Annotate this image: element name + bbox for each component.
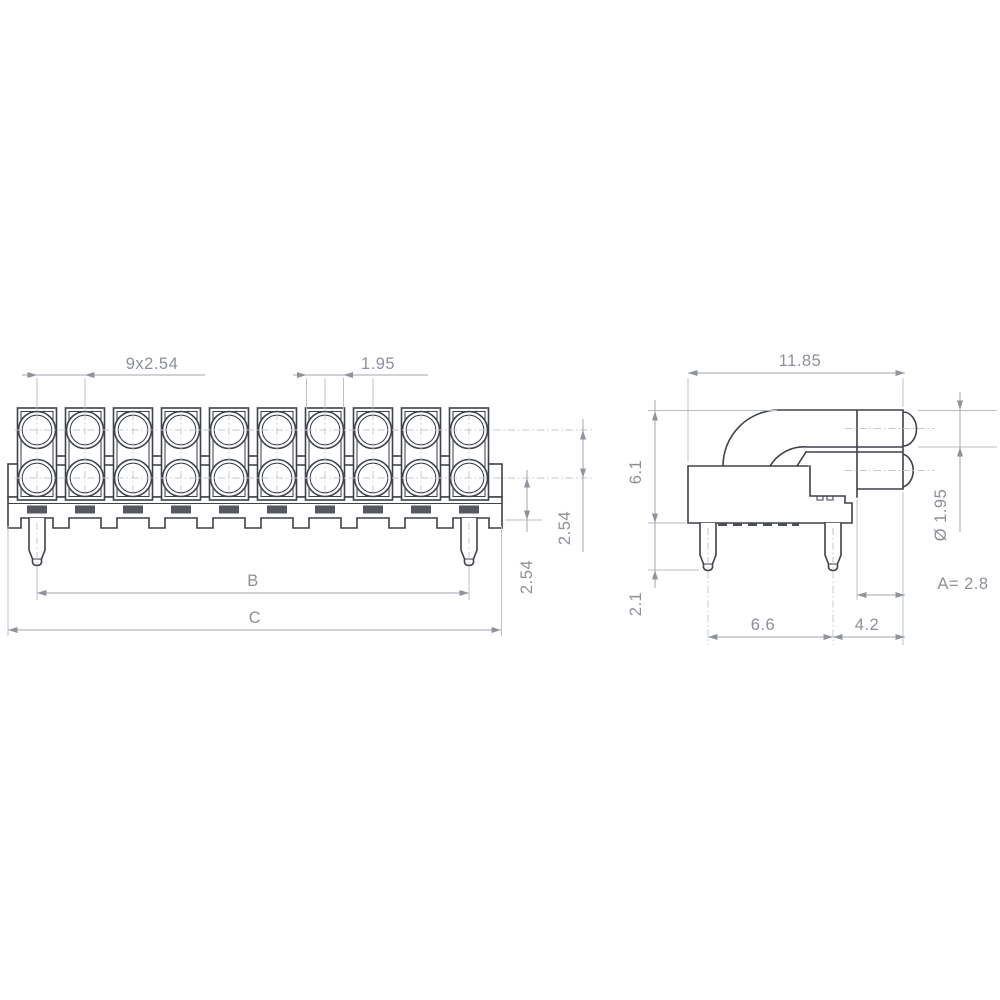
led-column — [66, 408, 105, 514]
dim-label-pin-spacing: 6.6 — [751, 616, 775, 634]
led-column — [162, 408, 201, 514]
led-column — [114, 408, 153, 514]
dim-label-pitch: 9x2.54 — [126, 355, 179, 373]
dim-label-lens-offset: 4.2 — [855, 616, 879, 634]
dim-label-pin-span-b: B — [247, 572, 259, 590]
led-column — [210, 408, 249, 514]
technical-drawing-canvas: 9x2.54 1.95 2.54 2.54 B C 11.85 6.1 2.1 … — [0, 0, 1000, 1000]
mounting-pin — [29, 518, 45, 566]
side-view — [688, 410, 917, 571]
led-column — [258, 408, 297, 514]
front-view — [8, 408, 502, 566]
side-body-outline — [688, 410, 917, 523]
dim-label-row-to-seating: 2.54 — [518, 560, 536, 594]
dim-label-row-pitch: 2.54 — [556, 511, 574, 545]
led-column — [354, 408, 393, 514]
dim-label-led-diameter: 1.95 — [361, 355, 395, 373]
technical-drawing-page: 9x2.54 1.95 2.54 2.54 B C 11.85 6.1 2.1 … — [0, 0, 1000, 1000]
dim-label-lens-diameter: Ø 1.95 — [932, 489, 950, 542]
dim-label-overall-width-c: C — [249, 609, 261, 627]
led-column — [306, 408, 345, 514]
mounting-pin — [461, 518, 477, 566]
led-column — [18, 408, 57, 514]
dim-label-overall-depth: 11.85 — [779, 352, 822, 370]
dim-label-a: A= 2.8 — [937, 575, 988, 593]
led-column — [450, 408, 489, 514]
dim-label-pin-protrusion: 2.1 — [627, 592, 645, 616]
dim-label-body-height: 6.1 — [627, 460, 645, 484]
led-column — [402, 408, 441, 514]
